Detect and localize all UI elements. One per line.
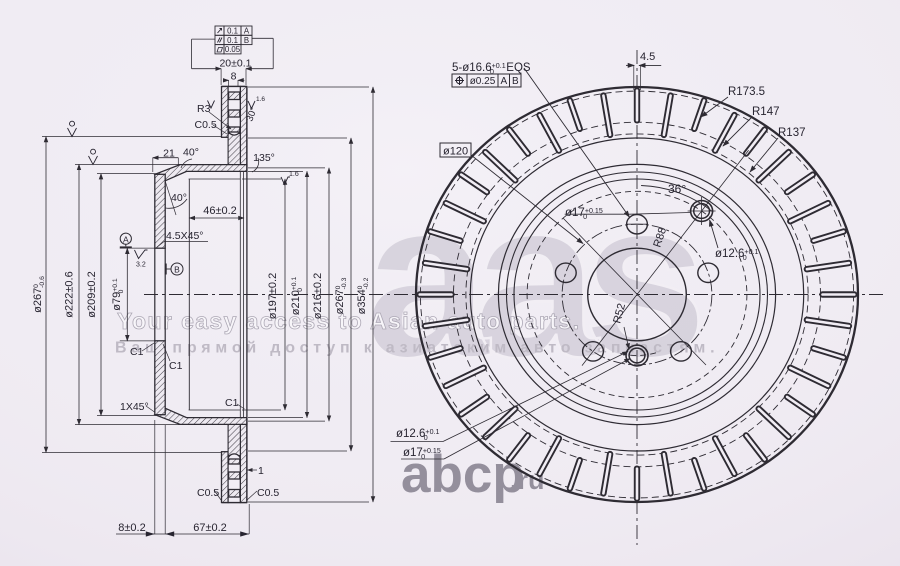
svg-text:C0.5: C0.5 bbox=[257, 487, 279, 499]
svg-text:C1: C1 bbox=[130, 346, 144, 358]
svg-text:1.6: 1.6 bbox=[289, 171, 299, 178]
svg-text:ø120: ø120 bbox=[443, 146, 468, 158]
svg-text:R3: R3 bbox=[197, 103, 211, 115]
svg-text:4.5: 4.5 bbox=[640, 51, 655, 63]
svg-text:0.05: 0.05 bbox=[225, 45, 241, 54]
svg-text:C1: C1 bbox=[169, 360, 183, 372]
svg-text:ø209±0.2: ø209±0.2 bbox=[86, 271, 98, 317]
svg-text:A: A bbox=[123, 234, 129, 244]
svg-text:40°: 40° bbox=[183, 147, 199, 159]
svg-text:1: 1 bbox=[258, 465, 264, 477]
svg-text:8: 8 bbox=[231, 71, 237, 83]
svg-text:ø197±0.2: ø197±0.2 bbox=[267, 273, 279, 319]
svg-text:0.1: 0.1 bbox=[227, 36, 238, 45]
svg-text:1.6: 1.6 bbox=[256, 96, 265, 103]
svg-text:B: B bbox=[244, 36, 249, 45]
svg-text:46±0.2: 46±0.2 bbox=[203, 205, 237, 217]
svg-text:A: A bbox=[500, 76, 507, 87]
svg-text:R137: R137 bbox=[778, 127, 806, 139]
svg-text:ø222±0.6: ø222±0.6 bbox=[64, 271, 76, 317]
svg-text:8±0.2: 8±0.2 bbox=[118, 522, 145, 534]
svg-text:R147: R147 bbox=[752, 106, 780, 118]
svg-text:36°: 36° bbox=[668, 182, 686, 196]
svg-text:1X45°: 1X45° bbox=[120, 401, 149, 413]
svg-text:ø216±0.2: ø216±0.2 bbox=[312, 273, 324, 319]
svg-text:C1: C1 bbox=[225, 397, 239, 409]
svg-text:B: B bbox=[512, 76, 519, 87]
svg-text:ø0.25: ø0.25 bbox=[470, 76, 496, 87]
svg-text:Your easy access to Asian auto: Your easy access to Asian auto parts. bbox=[117, 308, 580, 334]
svg-text:R173.5: R173.5 bbox=[728, 86, 765, 98]
svg-text:A: A bbox=[244, 27, 250, 36]
svg-text:135°: 135° bbox=[253, 152, 275, 164]
svg-text:67±0.2: 67±0.2 bbox=[193, 522, 227, 534]
svg-text:4.5X45°: 4.5X45° bbox=[166, 230, 203, 242]
svg-text:0.1: 0.1 bbox=[227, 27, 238, 36]
svg-text:20±0.1: 20±0.1 bbox=[219, 58, 251, 70]
svg-text:3.2: 3.2 bbox=[136, 262, 146, 269]
svg-text:B: B bbox=[174, 265, 180, 275]
